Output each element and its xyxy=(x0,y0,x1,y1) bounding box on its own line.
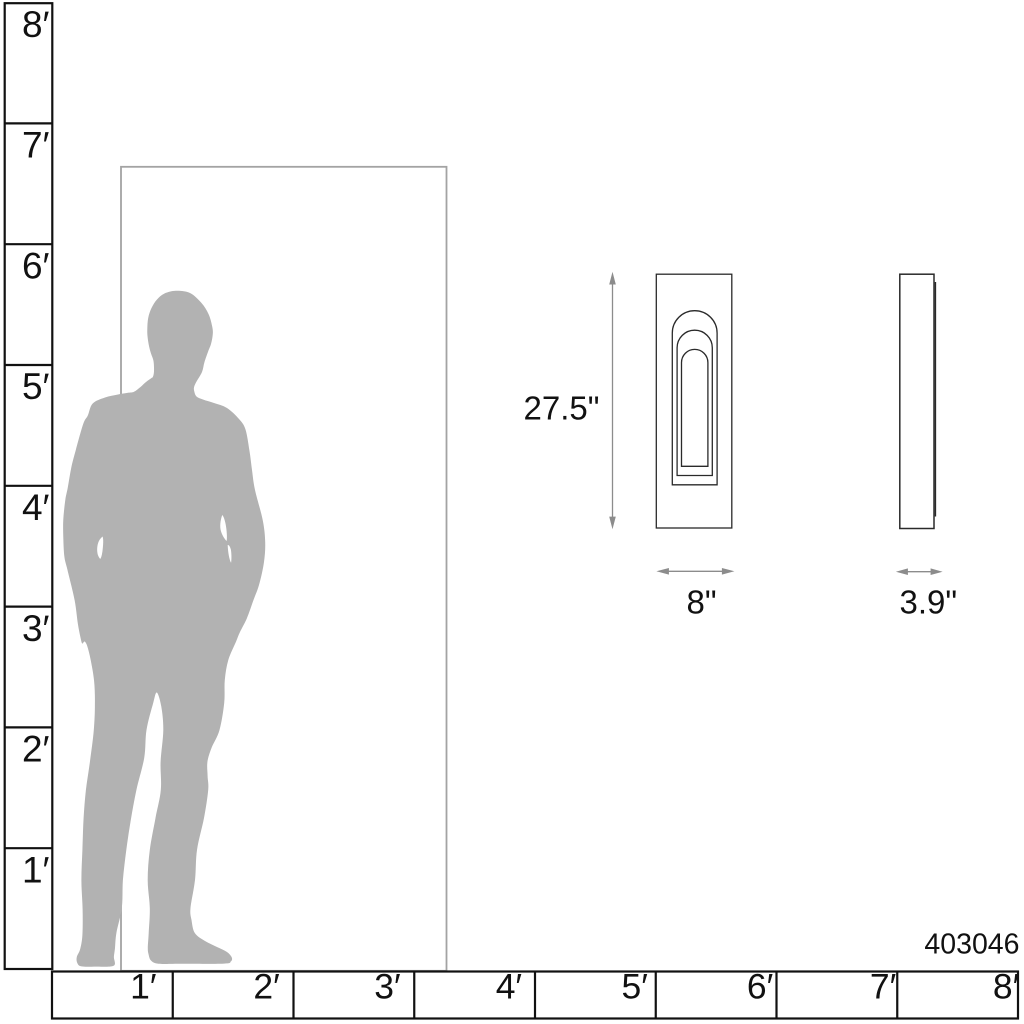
svg-text:4′: 4′ xyxy=(496,966,522,1006)
svg-text:5′: 5′ xyxy=(22,366,50,407)
svg-text:1′: 1′ xyxy=(130,966,156,1006)
svg-text:8′: 8′ xyxy=(22,4,50,45)
svg-text:6′: 6′ xyxy=(22,245,50,286)
svg-text:3.9": 3.9" xyxy=(900,583,958,620)
svg-text:5′: 5′ xyxy=(621,966,647,1006)
svg-text:3′: 3′ xyxy=(22,608,50,649)
svg-text:7′: 7′ xyxy=(22,125,50,166)
svg-text:27.5": 27.5" xyxy=(524,389,600,426)
svg-text:2′: 2′ xyxy=(253,966,279,1006)
svg-text:6′: 6′ xyxy=(747,966,773,1006)
svg-text:4′: 4′ xyxy=(22,487,50,528)
svg-text:403046: 403046 xyxy=(924,929,1019,961)
svg-text:7′: 7′ xyxy=(870,966,896,1006)
svg-text:2′: 2′ xyxy=(22,729,50,770)
svg-text:3′: 3′ xyxy=(374,966,400,1006)
svg-text:8": 8" xyxy=(687,583,717,620)
svg-text:8′: 8′ xyxy=(993,966,1019,1006)
svg-text:1′: 1′ xyxy=(22,849,50,890)
